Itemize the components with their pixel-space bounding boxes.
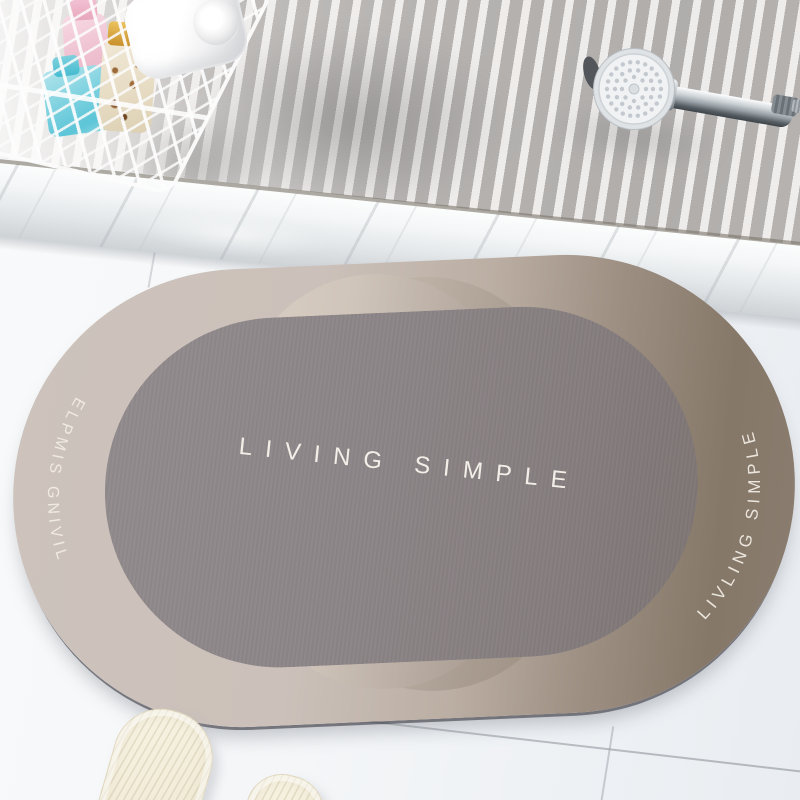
mat-right-arc-text: LIVLING SIMPLE: [686, 425, 771, 624]
shower-head: [590, 45, 678, 133]
shower-hose: [791, 99, 800, 114]
svg-text:LIVLING SIMPLE: LIVLING SIMPLE: [686, 425, 771, 624]
bath-mat: ELPMIS GNIVIL LIVLING SIMPLE LIVING SIMP…: [3, 245, 800, 737]
towel-roll-end: [189, 0, 244, 50]
bathroom-product-photo: ELPMIS GNIVIL LIVLING SIMPLE LIVING SIMP…: [0, 0, 800, 800]
